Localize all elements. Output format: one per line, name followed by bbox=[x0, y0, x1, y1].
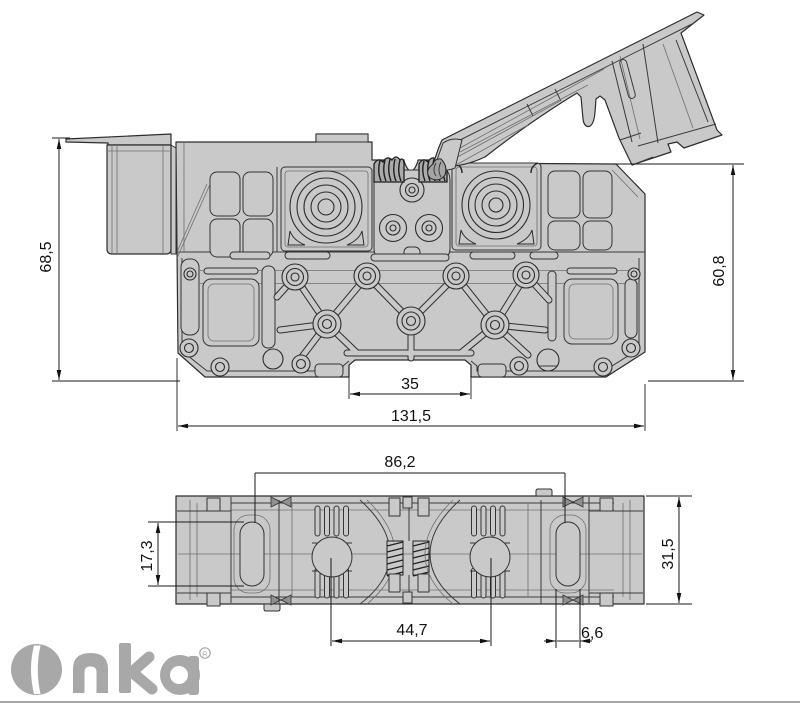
svg-text:31,5: 31,5 bbox=[660, 538, 677, 569]
svg-text:35: 35 bbox=[401, 376, 419, 393]
svg-text:131,5: 131,5 bbox=[391, 408, 431, 425]
svg-text:44,7: 44,7 bbox=[396, 622, 427, 639]
svg-text:60,8: 60,8 bbox=[711, 255, 728, 286]
svg-text:86,2: 86,2 bbox=[384, 454, 415, 471]
svg-text:6,6: 6,6 bbox=[581, 625, 603, 642]
svg-text:R: R bbox=[202, 650, 208, 659]
svg-text:17,3: 17,3 bbox=[139, 540, 156, 571]
svg-text:68,5: 68,5 bbox=[38, 241, 55, 272]
